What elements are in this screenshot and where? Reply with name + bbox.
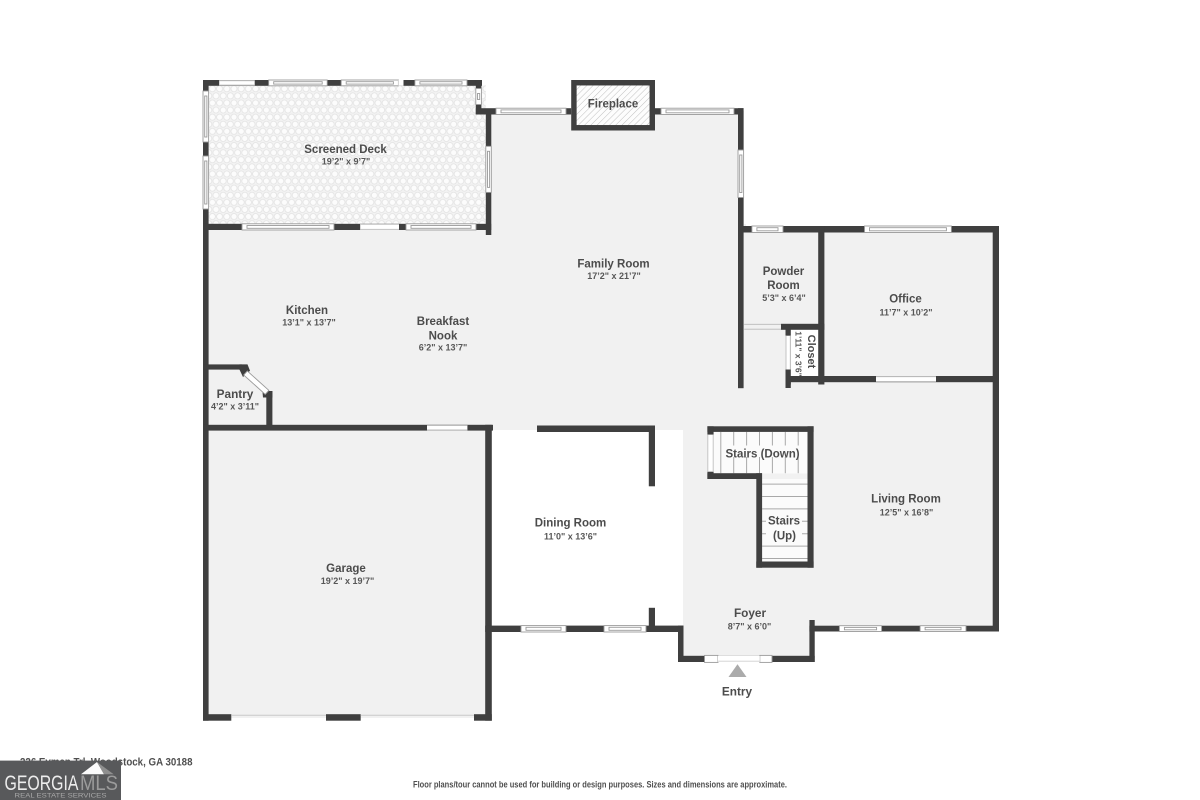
svg-text:Fireplace: Fireplace	[588, 99, 639, 111]
svg-text:Family Room: Family Room	[577, 259, 649, 271]
svg-text:Stairs (Down): Stairs (Down)	[725, 449, 799, 461]
svg-text:17’2" x 21’7": 17’2" x 21’7"	[587, 271, 641, 281]
svg-text:19’2" x 19’7": 19’2" x 19’7"	[321, 576, 375, 586]
svg-text:11’7" x 10’2": 11’7" x 10’2"	[879, 308, 932, 318]
svg-text:(Up): (Up)	[773, 531, 796, 543]
svg-text:Foyer: Foyer	[734, 606, 767, 620]
svg-text:Kitchen: Kitchen	[286, 305, 328, 317]
svg-text:Office: Office	[889, 294, 922, 306]
svg-text:19’2" x 9’7": 19’2" x 9’7"	[322, 157, 371, 167]
svg-text:12’5" x 16’8": 12’5" x 16’8"	[880, 508, 934, 518]
svg-text:Room: Room	[767, 280, 800, 292]
svg-text:Garage: Garage	[326, 563, 366, 575]
svg-text:Dining Room: Dining Room	[535, 518, 607, 530]
svg-text:REAL ESTATE SERVICES: REAL ESTATE SERVICES	[15, 793, 108, 800]
svg-text:Screened Deck: Screened Deck	[304, 144, 387, 156]
svg-text:5’3" x 6’4": 5’3" x 6’4"	[762, 293, 806, 303]
svg-text:13’1" x 13’7": 13’1" x 13’7"	[282, 318, 336, 328]
svg-text:Nook: Nook	[429, 331, 458, 343]
svg-text:Closet: Closet	[805, 335, 817, 369]
svg-text:Breakfast: Breakfast	[417, 316, 470, 328]
svg-text:Powder: Powder	[763, 266, 805, 278]
svg-text:Floor plans/tour cannot be use: Floor plans/tour cannot be used for buil…	[413, 780, 787, 790]
svg-text:4’2" x 3’11": 4’2" x 3’11"	[211, 402, 259, 412]
svg-text:1’11" x 3’6": 1’11" x 3’6"	[793, 331, 803, 376]
svg-text:Entry: Entry	[722, 685, 753, 699]
svg-text:Stairs: Stairs	[768, 516, 800, 528]
svg-text:8’7" x 6’0": 8’7" x 6’0"	[728, 622, 772, 632]
svg-text:Living Room: Living Room	[871, 494, 941, 506]
svg-text:Pantry: Pantry	[217, 387, 254, 401]
svg-text:11’0" x 13’6": 11’0" x 13’6"	[544, 532, 597, 542]
svg-text:6’2" x 13’7": 6’2" x 13’7"	[419, 343, 468, 353]
